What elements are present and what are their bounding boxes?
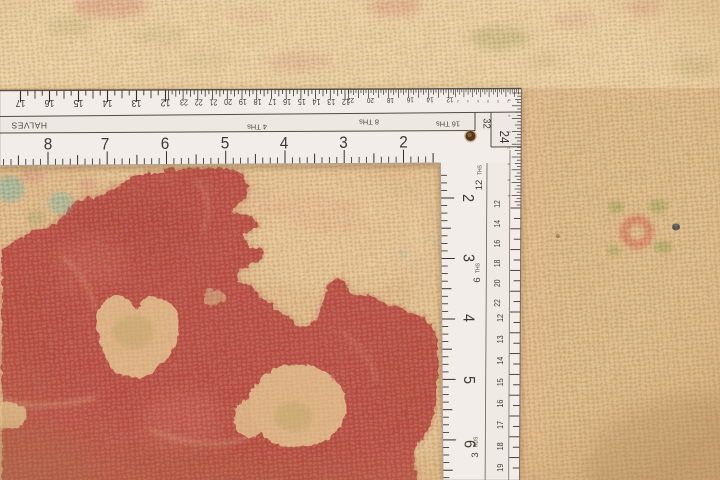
svg-text:15: 15 [495, 378, 505, 387]
svg-text:15: 15 [297, 97, 306, 107]
svg-text:THS: THS [476, 262, 482, 273]
svg-text:22: 22 [347, 96, 354, 104]
svg-text:7: 7 [101, 135, 110, 154]
svg-text:8: 8 [44, 135, 53, 154]
svg-text:32: 32 [480, 118, 492, 129]
svg-text:12: 12 [161, 98, 171, 109]
svg-text:14: 14 [492, 220, 502, 228]
svg-text:13: 13 [132, 98, 142, 109]
svg-text:5: 5 [221, 134, 230, 153]
svg-text:12: 12 [495, 314, 505, 322]
svg-text:HALVES: HALVES [11, 120, 47, 130]
svg-text:18: 18 [253, 97, 262, 107]
svg-text:6: 6 [472, 277, 483, 282]
svg-text:16: 16 [495, 399, 505, 408]
svg-text:14: 14 [103, 98, 113, 109]
svg-text:13: 13 [327, 97, 336, 107]
svg-text:16: 16 [407, 96, 414, 104]
svg-text:RDS: RDS [474, 436, 480, 447]
svg-text:3: 3 [459, 254, 477, 262]
svg-text:16: 16 [283, 97, 292, 107]
svg-text:22: 22 [492, 299, 502, 307]
svg-text:19: 19 [239, 97, 247, 107]
svg-text:8 THs: 8 THs [359, 118, 379, 127]
svg-text:18: 18 [492, 260, 502, 268]
svg-text:18: 18 [387, 96, 394, 104]
svg-text:20: 20 [224, 97, 233, 107]
svg-text:12: 12 [492, 200, 502, 208]
svg-text:17: 17 [495, 421, 505, 429]
svg-text:4: 4 [280, 134, 289, 153]
svg-text:19: 19 [495, 464, 505, 472]
svg-text:23: 23 [179, 97, 188, 107]
svg-text:14: 14 [312, 97, 321, 107]
svg-text:13: 13 [495, 335, 505, 344]
svg-text:18: 18 [495, 442, 505, 451]
svg-text:4: 4 [460, 314, 478, 323]
svg-text:16 THs: 16 THs [436, 120, 460, 129]
svg-text:15: 15 [74, 98, 84, 109]
svg-text:17: 17 [16, 98, 26, 109]
svg-text:2: 2 [459, 194, 477, 202]
svg-text:14: 14 [427, 95, 434, 103]
svg-text:THS: THS [478, 164, 484, 175]
svg-text:16: 16 [492, 240, 502, 248]
svg-text:6: 6 [161, 134, 170, 153]
svg-text:20: 20 [367, 96, 374, 104]
svg-text:12: 12 [446, 95, 453, 103]
svg-text:21: 21 [209, 97, 217, 107]
svg-text:22: 22 [195, 97, 203, 107]
svg-text:14: 14 [495, 356, 505, 365]
svg-text:12: 12 [474, 180, 485, 191]
svg-text:5: 5 [460, 376, 478, 384]
svg-text:4 THs: 4 THs [247, 123, 267, 132]
svg-text:16: 16 [45, 98, 55, 109]
svg-text:20: 20 [492, 279, 502, 287]
svg-text:3: 3 [339, 133, 348, 152]
svg-text:3: 3 [470, 452, 481, 457]
svg-text:17: 17 [268, 97, 276, 107]
svg-text:2: 2 [399, 133, 408, 152]
